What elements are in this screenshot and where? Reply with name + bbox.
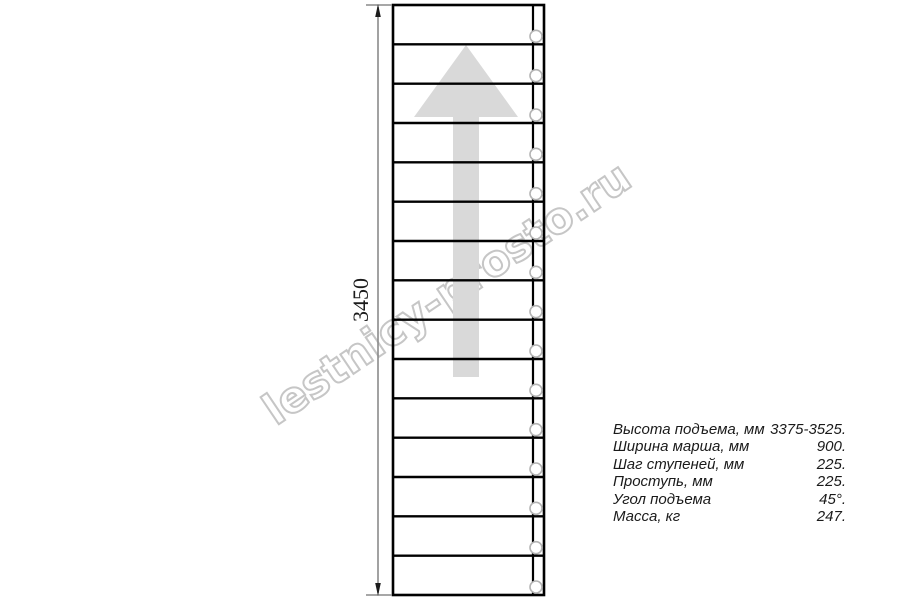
bolt-circle	[530, 424, 542, 436]
spec-table: Высота подъема, мм3375-3525.Ширина марша…	[613, 421, 846, 525]
spec-row: Ширина марша, мм900.	[613, 438, 846, 455]
bolt-circle	[530, 109, 542, 121]
bolt-circle	[530, 306, 542, 318]
spec-label: Ширина марша, мм	[613, 438, 749, 455]
dimension-group: 3450	[348, 4, 392, 596]
bolt-circle	[530, 148, 542, 160]
spec-label: Шаг ступеней, мм	[613, 456, 744, 473]
dimension-arrowhead-bottom	[375, 583, 381, 596]
dimension-arrowhead-top	[375, 4, 381, 17]
spec-label: Проступь, мм	[613, 473, 713, 490]
bolt-circle	[530, 70, 542, 82]
bolt-circle	[530, 581, 542, 593]
spec-value: 45°.	[819, 491, 846, 508]
spec-label: Масса, кг	[613, 508, 680, 525]
bolt-circle	[530, 542, 542, 554]
spec-value: 900.	[817, 438, 846, 455]
spec-label: Высота подъема, мм	[613, 421, 765, 438]
spec-label: Угол подъема	[613, 491, 711, 508]
direction-up-arrow	[414, 45, 518, 377]
bolt-circle	[530, 345, 542, 357]
spec-row: Проступь, мм225.	[613, 473, 846, 490]
bolt-circle	[530, 463, 542, 475]
bolt-circle	[530, 30, 542, 42]
spec-value: 225.	[817, 473, 846, 490]
stair-plan-page: lestnicy-prosto.ru 3450 Высота подъема, …	[0, 0, 900, 600]
spec-value: 3375-3525.	[770, 421, 846, 438]
bolt-circle	[530, 227, 542, 239]
spec-value: 247.	[817, 508, 846, 525]
spec-value: 225.	[817, 456, 846, 473]
spec-row: Высота подъема, мм3375-3525.	[613, 421, 846, 438]
spec-row: Масса, кг247.	[613, 508, 846, 525]
bolt-circle	[530, 502, 542, 514]
bolt-circle	[530, 266, 542, 278]
dimension-label: 3450	[348, 278, 373, 322]
bolt-circle	[530, 188, 542, 200]
spec-row: Угол подъема45°.	[613, 491, 846, 508]
bolt-circle	[530, 384, 542, 396]
spec-row: Шаг ступеней, мм225.	[613, 456, 846, 473]
